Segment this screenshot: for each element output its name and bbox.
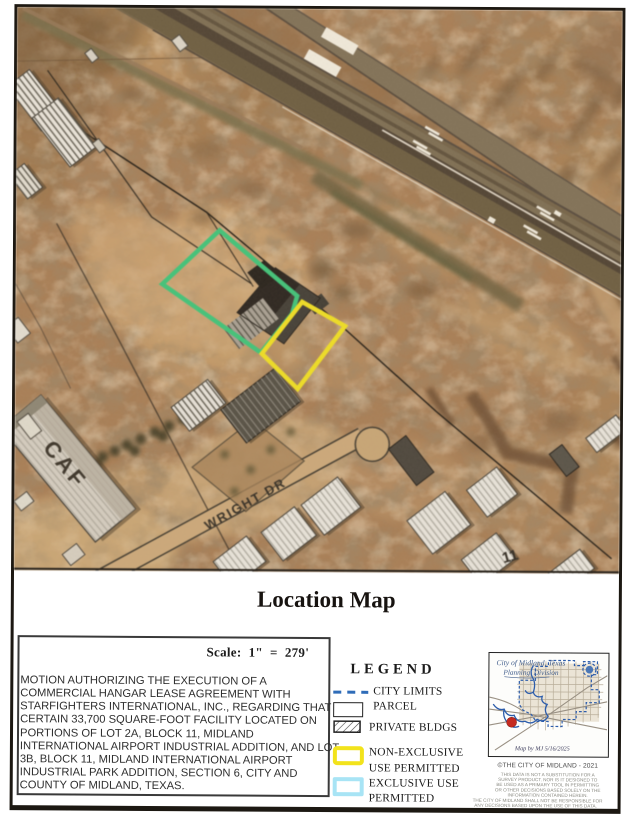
svg-text:Planning Division: Planning Division [502,668,559,677]
svg-text:City of Midland, Texas: City of Midland, Texas [496,658,565,667]
svg-text:Map by MJ 5/16/2025: Map by MJ 5/16/2025 [513,745,569,752]
